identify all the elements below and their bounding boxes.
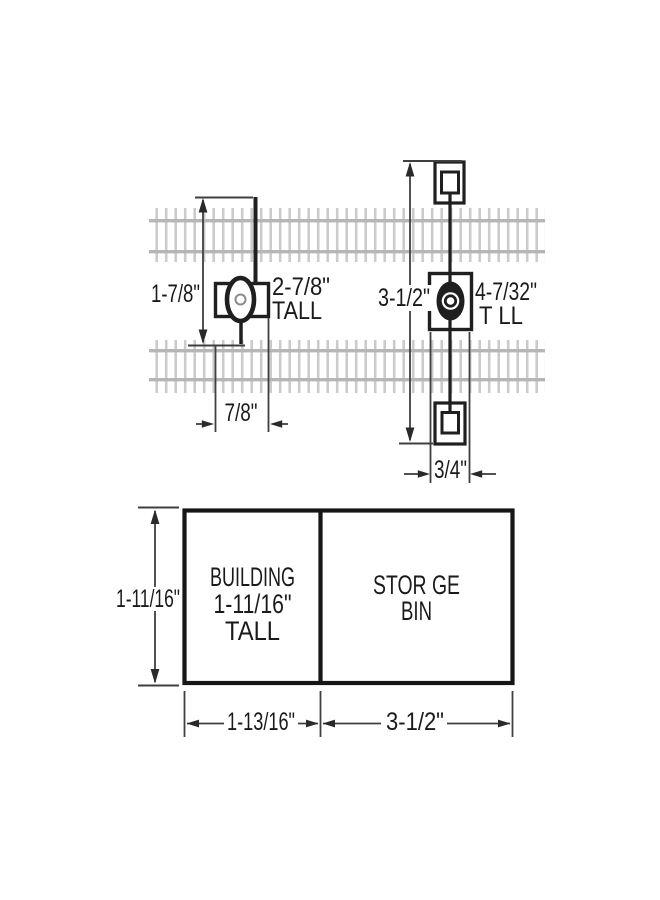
track-lower-rail-bottom [149,378,545,381]
building-label-line3: TALL [225,616,280,646]
right-height-label: 3-1/2" [378,284,430,312]
dimension-diagram-page: 1-7/8" 2-7/8" TALL 7/8" 3-1/2" 4-7/32" T… [0,0,660,900]
building-width-label: 1-13/16" [227,708,295,736]
plan-height-label: 1-11/16" [116,585,180,613]
canvas-background [0,0,660,900]
track-upper-rail-bottom [149,250,545,253]
track-upper-rail-top [149,219,545,222]
right-tall-label-line2: T LL [479,302,523,330]
track-lower [149,340,545,393]
track-lower-ties [149,340,545,393]
left-signal-pivot [236,295,246,305]
left-tall-label-line2: TALL [272,297,322,325]
left-width-label: 7/8" [225,399,258,427]
left-height-label: 1-7/8" [151,280,200,308]
track-upper [149,208,545,262]
building-plan: BUILDING 1-11/16" TALL STOR GE BIN [185,510,513,683]
track-upper-ties [149,208,545,262]
right-width-label: 3/4" [434,456,467,484]
bin-width-label: 3-1/2" [386,708,444,736]
bin-label-line2: BIN [401,596,432,626]
dimension-diagram: 1-7/8" 2-7/8" TALL 7/8" 3-1/2" 4-7/32" T… [0,0,660,900]
building-label-line1: BUILDING [210,562,295,592]
track-lower-rail-top [149,349,545,352]
right-switch-stand [430,162,472,444]
building-label-line2: 1-11/16" [214,589,292,619]
